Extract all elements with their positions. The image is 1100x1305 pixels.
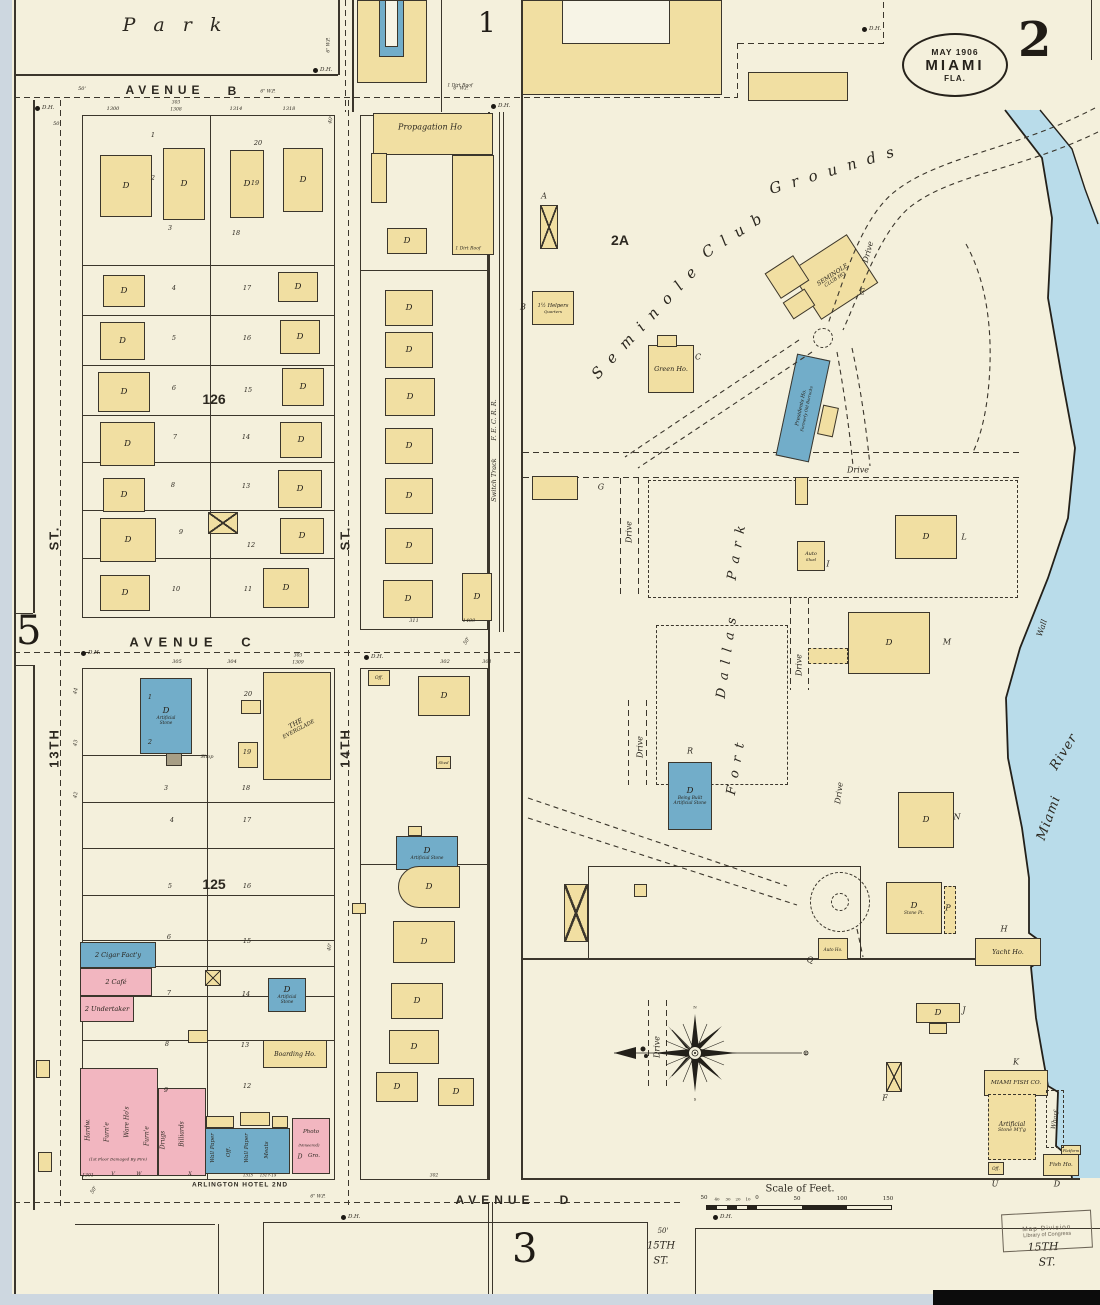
sheet-number: 2 [1018,12,1051,68]
stamp-date: MAY 1906 [931,47,978,57]
scan-black-bar [933,1290,1100,1305]
stamp-state: FLA. [944,74,966,83]
scale-title: Scale of Feet. [765,1184,834,1195]
adjacent-sheet-number-bottom: 3 [512,1226,537,1272]
scan-edge-bottom [0,1294,933,1305]
map-paper [12,0,1100,1294]
library-stamp: Map Division Library of Congress [1001,1210,1093,1253]
adjacent-sheet-number-left: 5 [16,608,41,654]
date-stamp-oval: MAY 1906 MIAMI FLA. [902,33,1008,97]
stamp-city: MIAMI [925,57,984,74]
scale-bar-minor [706,1205,756,1210]
scale-bar-major [756,1205,892,1210]
library-stamp-line2: Library of Congress [1023,1230,1071,1239]
scan-edge-left [0,0,12,1305]
adjacent-sheet-number-top: 1 [478,6,496,39]
sanborn-map-sheet: DDDDDDDDDDDDDDDDDDDDDDDDDDDDArtificialSt… [0,0,1100,1305]
